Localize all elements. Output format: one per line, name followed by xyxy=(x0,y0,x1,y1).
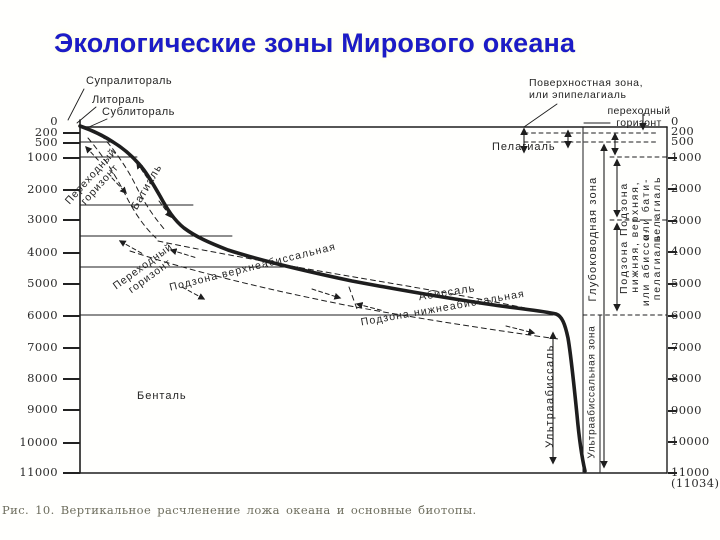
label-surface-zone: Поверхностная зона, или эпипелагиаль xyxy=(529,78,643,102)
right-axis-tick xyxy=(668,472,677,474)
left-axis-label: 10000 xyxy=(0,435,58,449)
label-pelagic-subzone-lower: Подзона нижняя, или абиссо- пелагиаль xyxy=(619,228,663,306)
left-axis-tick xyxy=(63,132,80,134)
right-axis-tick xyxy=(668,347,677,349)
left-axis-label: 7000 xyxy=(0,340,58,354)
right-axis-tick xyxy=(668,315,677,317)
left-axis-tick xyxy=(63,315,80,317)
label-supralittoral: Супралитораль xyxy=(86,75,172,87)
left-axis-tick xyxy=(63,409,80,411)
right-axis-tick xyxy=(668,441,677,443)
left-axis-label: 3000 xyxy=(0,212,58,226)
left-axis-label: 2000 xyxy=(0,182,58,196)
left-axis-label: 500 xyxy=(0,135,58,149)
figure-ecological-zones: Экологические зоны Мирового океана xyxy=(0,0,720,540)
left-axis-label: 5000 xyxy=(0,276,58,290)
label-deepwater-zone: Глубоководная зона xyxy=(587,177,599,302)
label-ultraabyssal: Ультраабиссаль xyxy=(544,344,556,448)
left-axis-tick xyxy=(63,347,80,349)
label-benthal: Бенталь xyxy=(137,390,187,402)
right-axis-tick xyxy=(668,188,677,190)
figure-caption: Рис. 10. Вертикальное расчленение ложа о… xyxy=(2,503,477,517)
left-axis-tick xyxy=(63,442,80,444)
left-axis-label: 4000 xyxy=(0,245,58,259)
right-axis-tick xyxy=(668,410,677,412)
right-axis-tick xyxy=(668,378,677,380)
left-axis-tick xyxy=(63,219,80,221)
left-axis-label: 9000 xyxy=(0,402,58,416)
right-axis-tick xyxy=(668,220,677,222)
supralittoral-leader xyxy=(68,89,84,120)
left-axis-label: 8000 xyxy=(0,371,58,385)
sublittoral-leader xyxy=(89,119,107,127)
left-axis-tick xyxy=(63,283,80,285)
label-ultraabyssal-zone: Ультраабиссальная зона xyxy=(586,325,597,458)
left-axis-tick xyxy=(63,142,80,144)
left-axis-tick xyxy=(63,157,80,159)
right-axis-label: (11034) xyxy=(671,476,719,490)
right-axis-tick xyxy=(668,283,677,285)
label-pelagial: Пелагиаль xyxy=(492,141,556,153)
littoral-leader xyxy=(77,107,96,123)
left-axis-tick xyxy=(63,472,80,474)
label-littoral: Литораль xyxy=(92,94,145,106)
left-axis-tick xyxy=(63,252,80,254)
left-axis-tick xyxy=(63,378,80,380)
left-axis-label: 11000 xyxy=(0,465,58,479)
label-transition-horizon-pelagic: переходный горизонт xyxy=(602,106,676,130)
right-axis-tick xyxy=(668,157,677,159)
left-axis-label: 1000 xyxy=(0,150,58,164)
left-axis-tick xyxy=(63,189,80,191)
label-sublittoral: Сублитораль xyxy=(102,106,175,118)
left-axis-label: 6000 xyxy=(0,308,58,322)
right-axis-tick xyxy=(668,251,677,253)
surface-zone-leader xyxy=(524,104,557,127)
right-axis-label: 500 xyxy=(671,134,694,148)
